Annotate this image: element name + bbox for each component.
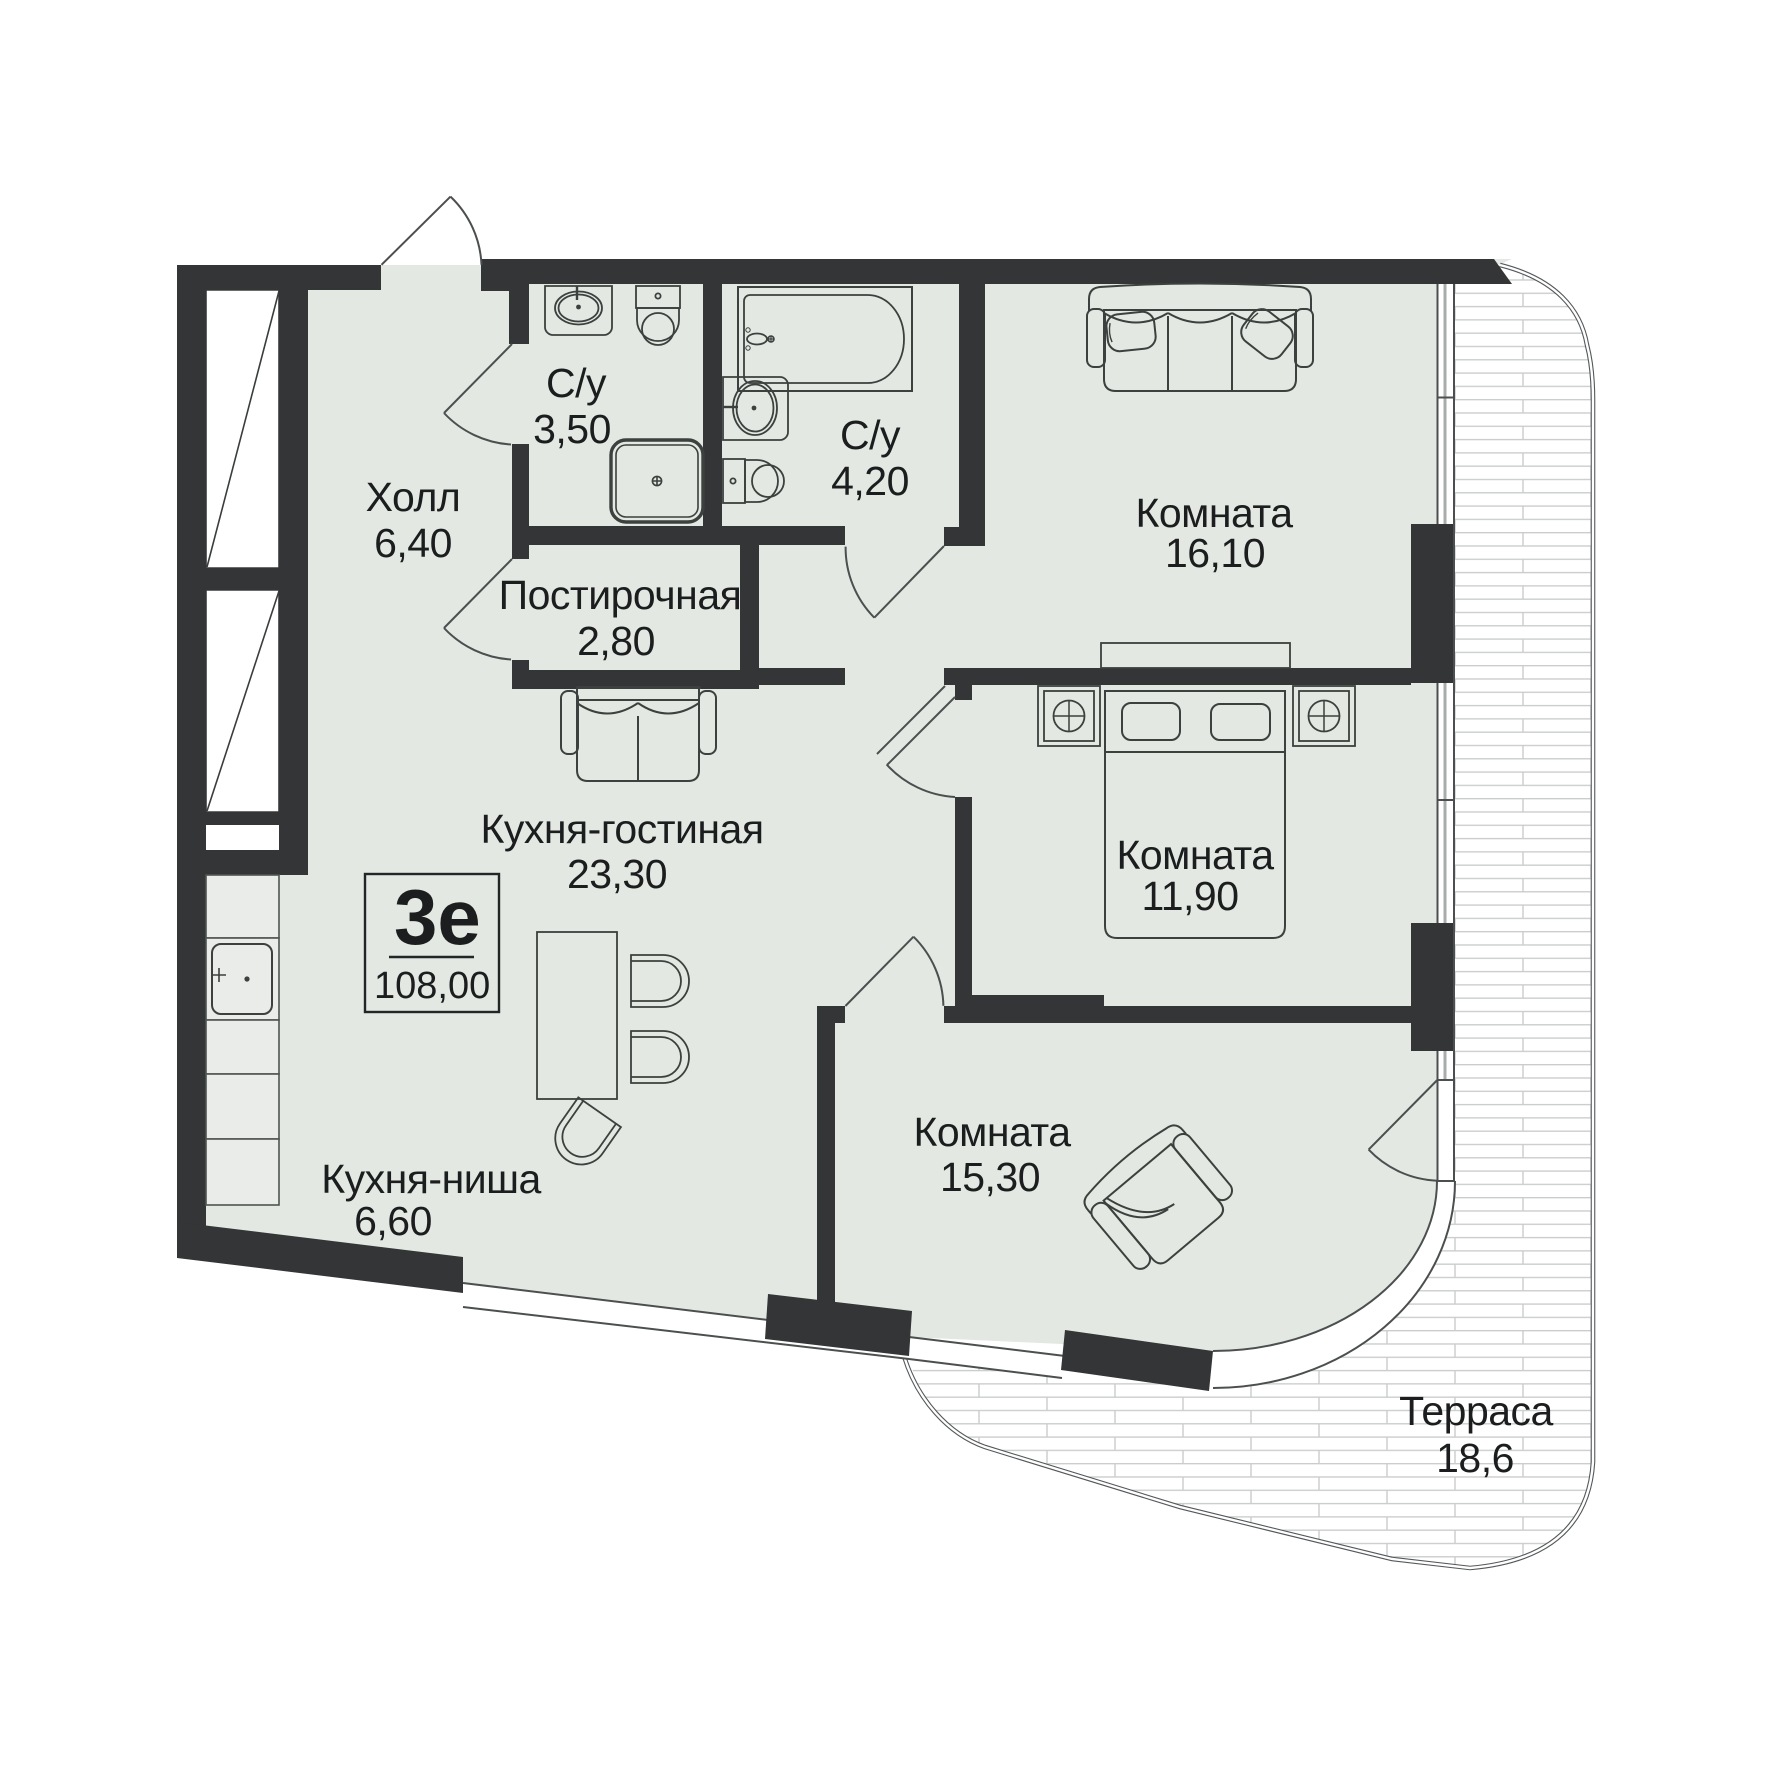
svg-text:2,80: 2,80 [577, 618, 655, 664]
svg-text:Холл: Холл [366, 474, 461, 520]
svg-text:Комната: Комната [913, 1109, 1071, 1155]
svg-text:15,30: 15,30 [940, 1154, 1040, 1200]
svg-text:Комната: Комната [1116, 832, 1274, 878]
svg-text:18,6: 18,6 [1436, 1435, 1514, 1481]
svg-text:С/у: С/у [546, 360, 607, 406]
svg-text:Постирочная: Постирочная [499, 572, 742, 618]
svg-text:108,00: 108,00 [374, 965, 490, 1007]
svg-text:4,20: 4,20 [831, 458, 909, 504]
svg-text:6,40: 6,40 [374, 520, 452, 566]
svg-text:23,30: 23,30 [567, 851, 667, 897]
svg-text:3е: 3е [394, 873, 481, 961]
svg-text:16,10: 16,10 [1165, 530, 1265, 576]
svg-text:11,90: 11,90 [1141, 873, 1238, 919]
svg-text:3,50: 3,50 [533, 406, 611, 452]
svg-text:Кухня-гостиная: Кухня-гостиная [480, 806, 763, 852]
svg-text:6,60: 6,60 [354, 1198, 432, 1244]
svg-text:Кухня-ниша: Кухня-ниша [321, 1156, 541, 1202]
svg-text:С/у: С/у [840, 412, 901, 458]
svg-text:Терраса: Терраса [1399, 1388, 1553, 1434]
